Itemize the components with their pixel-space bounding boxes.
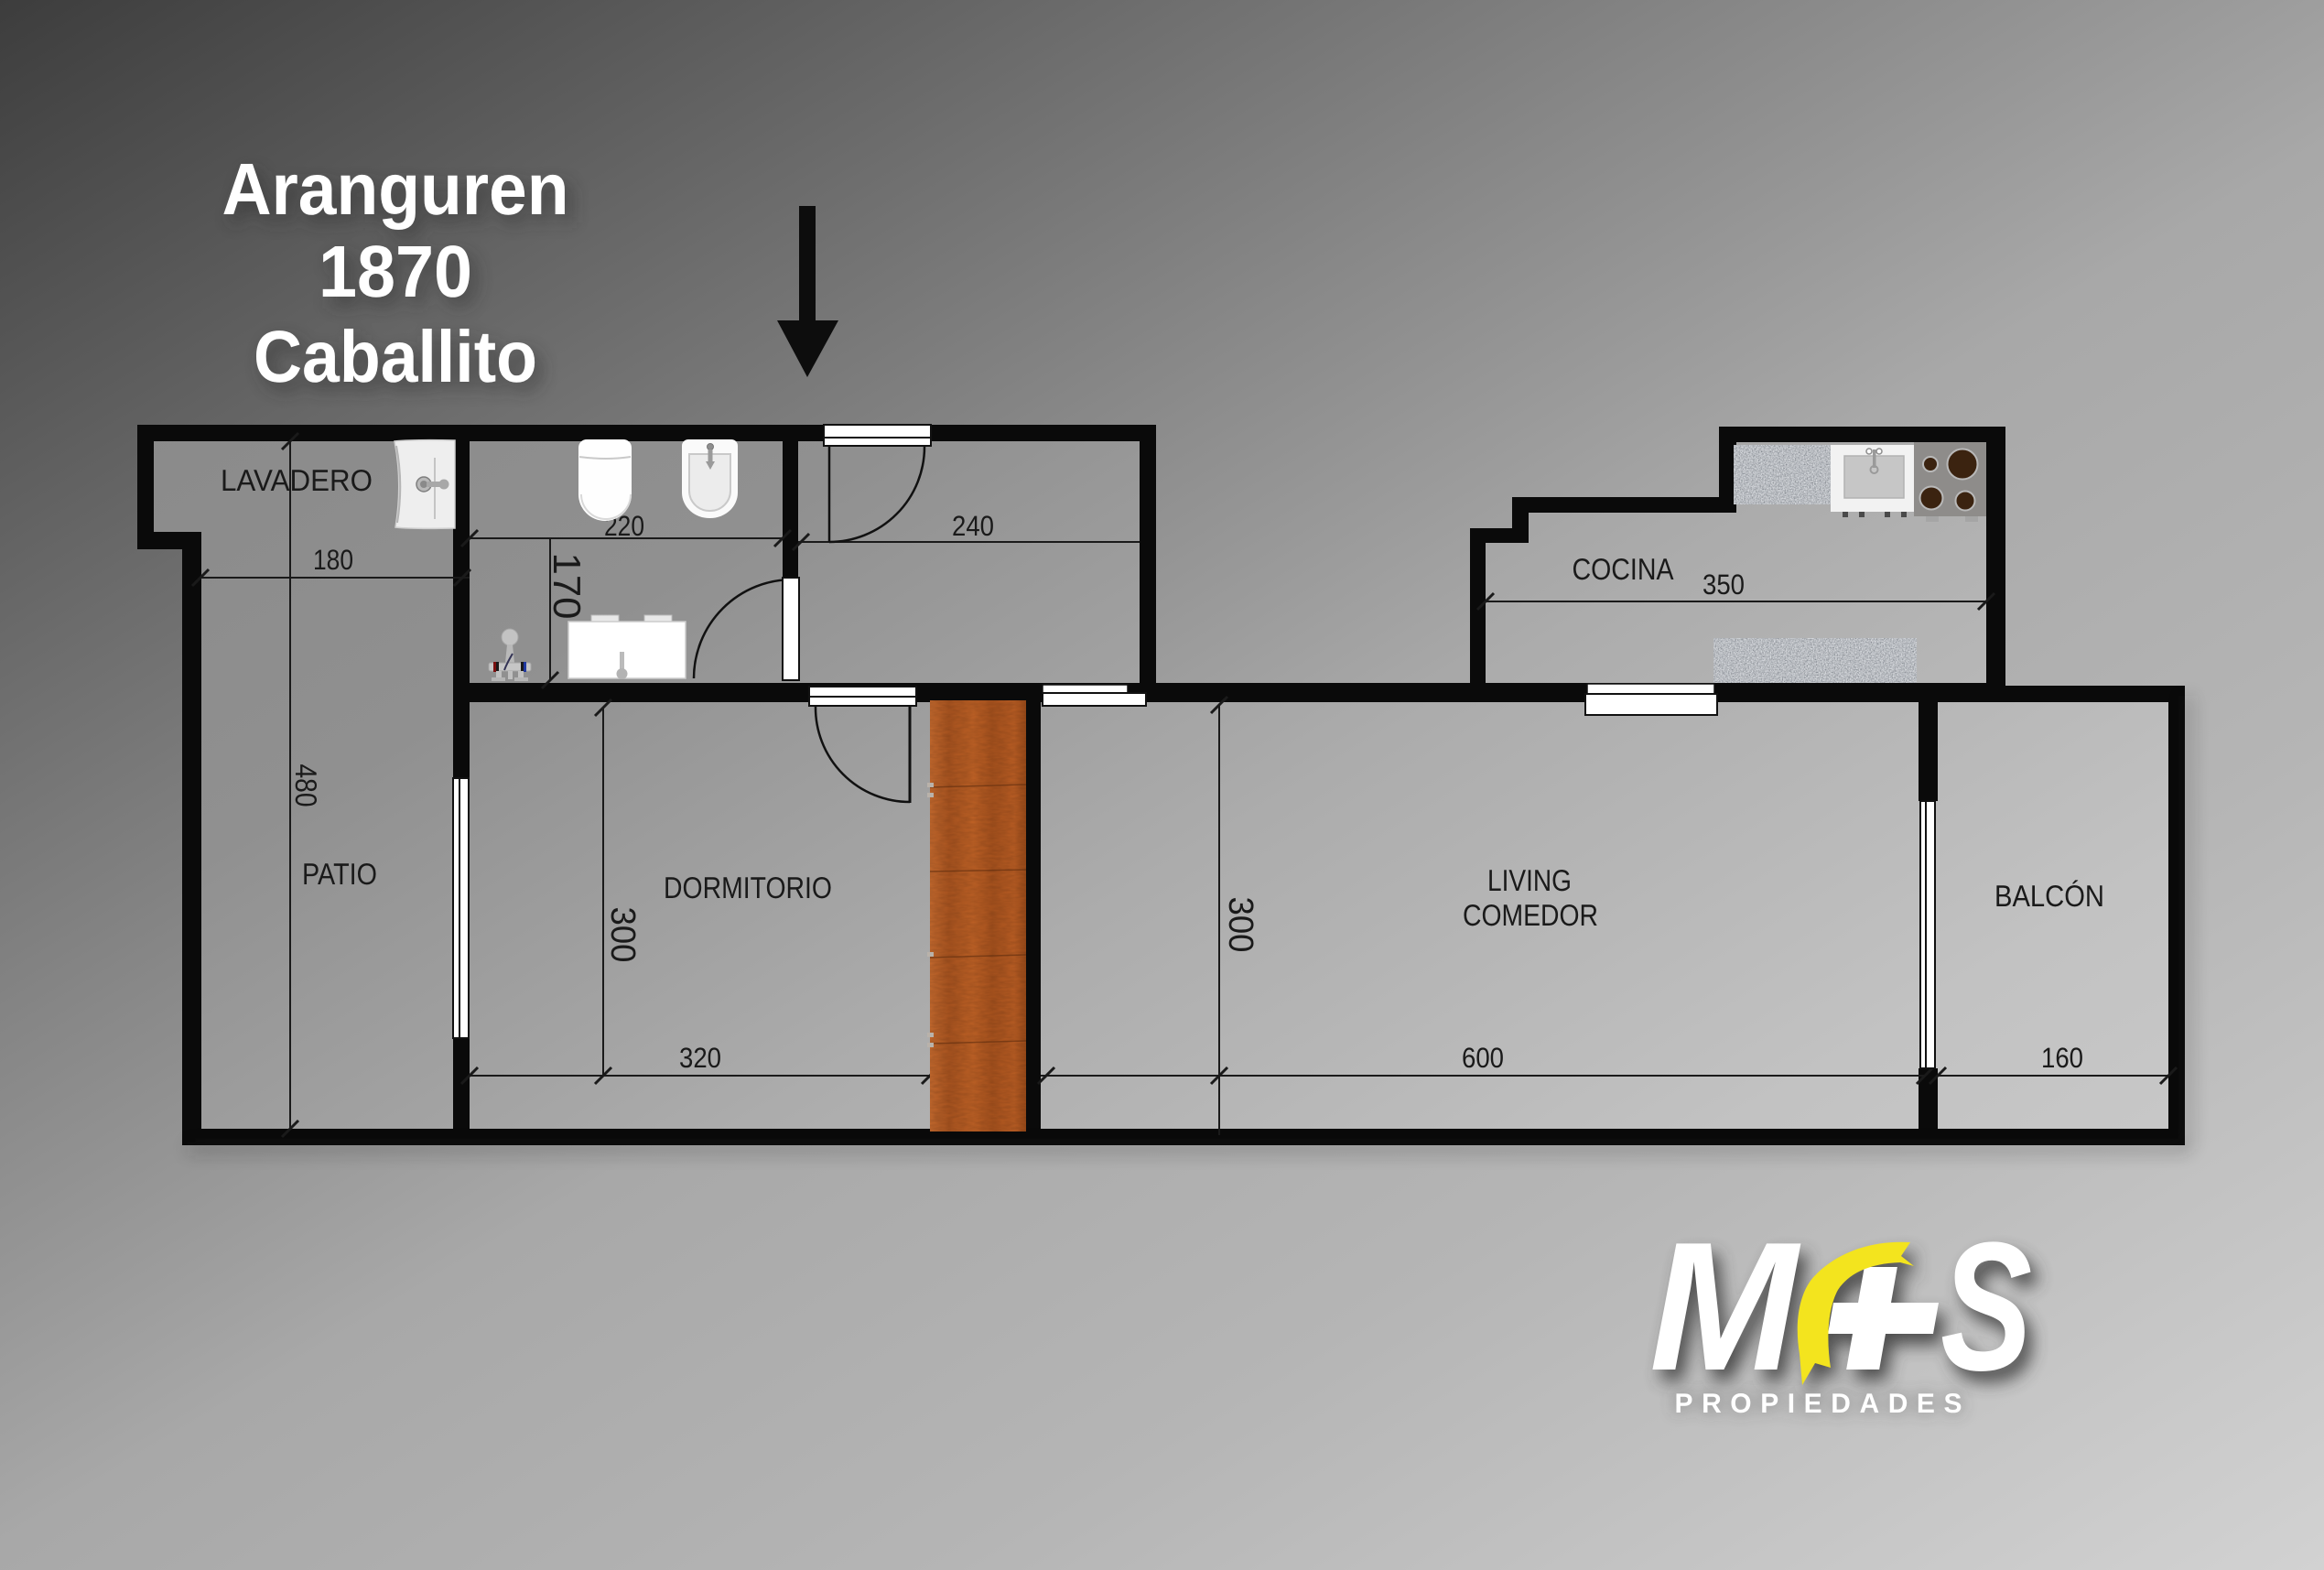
svg-text:COCINA: COCINA — [1573, 552, 1674, 586]
svg-text:S: S — [1940, 1205, 2032, 1409]
svg-text:Aranguren: Aranguren — [222, 148, 569, 230]
svg-text:480: 480 — [289, 764, 323, 807]
svg-text:LIVING: LIVING — [1487, 863, 1572, 897]
svg-text:320: 320 — [679, 1042, 721, 1074]
svg-text:PROPIEDADES: PROPIEDADES — [1675, 1389, 1971, 1419]
svg-text:160: 160 — [2041, 1042, 2083, 1074]
svg-text:350: 350 — [1702, 568, 1745, 601]
svg-text:240: 240 — [952, 510, 994, 542]
svg-text:600: 600 — [1462, 1042, 1504, 1074]
svg-text:LAVADERO: LAVADERO — [221, 463, 373, 497]
svg-text:1870: 1870 — [319, 231, 472, 312]
svg-text:DORMITORIO: DORMITORIO — [664, 871, 832, 904]
svg-text:300: 300 — [1221, 897, 1259, 953]
svg-text:170: 170 — [546, 553, 589, 620]
svg-text:BALCÓN: BALCÓN — [1994, 879, 2104, 913]
svg-text:300: 300 — [603, 907, 642, 963]
svg-text:180: 180 — [313, 544, 353, 576]
svg-text:PATIO: PATIO — [302, 857, 377, 891]
svg-text:M: M — [1649, 1205, 1801, 1409]
svg-text:COMEDOR: COMEDOR — [1463, 898, 1598, 932]
svg-text:Caballito: Caballito — [254, 316, 537, 397]
